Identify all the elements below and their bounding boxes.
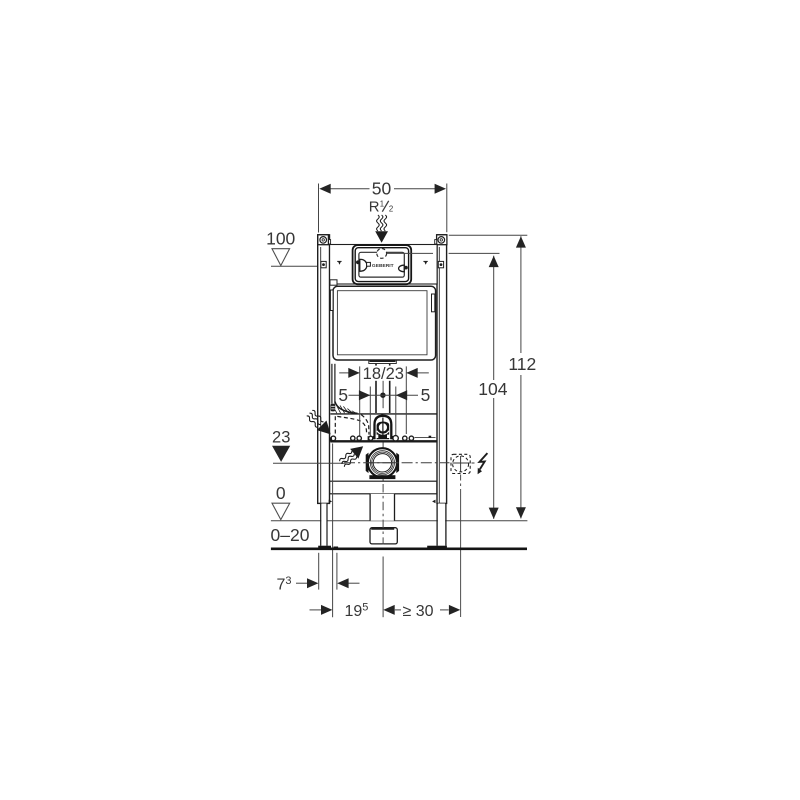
svg-text:5: 5	[338, 385, 348, 405]
svg-text:23: 23	[272, 428, 290, 446]
svg-text:0: 0	[276, 483, 286, 503]
svg-text:112: 112	[508, 354, 536, 374]
svg-text:5: 5	[421, 385, 431, 405]
svg-text:R: R	[369, 200, 380, 216]
svg-text:104: 104	[478, 379, 507, 399]
svg-text:18/23: 18/23	[363, 365, 404, 383]
svg-text:0–20: 0–20	[271, 525, 310, 545]
svg-text:100: 100	[266, 229, 295, 249]
svg-text:GEBERIT: GEBERIT	[372, 263, 394, 269]
svg-text:1: 1	[380, 200, 384, 209]
svg-text:50: 50	[372, 179, 392, 199]
svg-text:≥ 30: ≥ 30	[403, 603, 434, 620]
svg-text:2: 2	[389, 205, 393, 214]
